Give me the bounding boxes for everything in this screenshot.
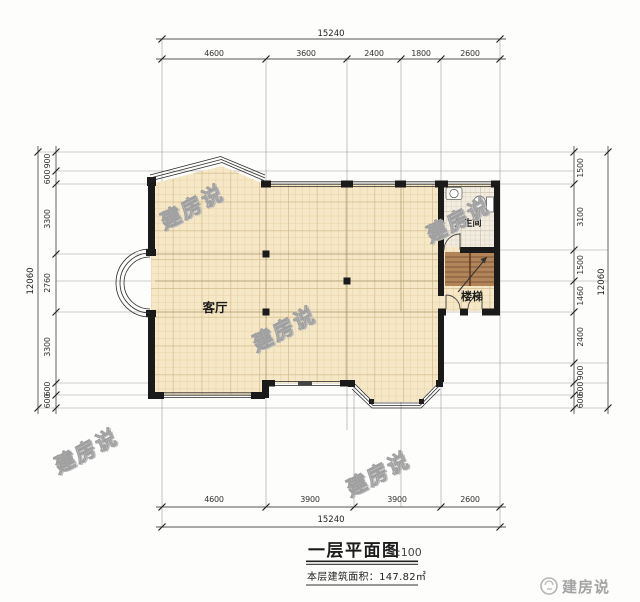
dim-bottom-segment: 2600: [460, 495, 480, 504]
title-underline: [306, 564, 418, 565]
bay-pier: [348, 380, 355, 387]
curved-bay-window: [116, 249, 150, 317]
wall-right: [494, 181, 500, 314]
wall-pier: [251, 392, 265, 399]
brand-logo: 建房说: [541, 578, 610, 596]
dim-bottom-total: 15240: [317, 515, 344, 525]
wall-left-lower: [148, 312, 155, 399]
dim-right-total: 12060: [597, 268, 607, 295]
dim-left-segment: 600: [43, 170, 52, 185]
dim-left-segment: 600: [43, 394, 52, 409]
sink-basin-icon: [450, 189, 458, 197]
dim-bottom-segment: 3900: [300, 495, 320, 504]
wall-pier: [438, 247, 444, 253]
watermark: 建房说 建房说: [51, 422, 122, 480]
column: [344, 278, 351, 285]
dim-right-segment: 2400: [576, 327, 585, 347]
dim-bottom-segment: 4600: [204, 495, 224, 504]
wall-pier: [341, 181, 353, 188]
title-underline: [306, 561, 418, 563]
wall-bathroom-divider: [460, 247, 494, 253]
dim-left-segment: 3300: [43, 209, 52, 229]
dim-top-segment: 2600: [460, 49, 480, 58]
sliding-door-leaf: [298, 381, 312, 386]
column: [263, 309, 270, 316]
dim-right-segment: 1460: [576, 286, 585, 306]
title-block: 一层平面图 1:100 本层建筑面积：147.82㎡: [306, 541, 426, 586]
dimension-text-right: 12060 1500 3100 1500 1460 2400 900 600 6…: [576, 158, 607, 408]
brand-name: 建房说: [562, 578, 610, 596]
dimension-text-top: 15240 4600 3600 2400 1800 2600: [204, 29, 480, 58]
watermark-text: 建房说: [51, 423, 120, 479]
dim-right-segment: 600: [576, 394, 585, 409]
wall-pier: [395, 181, 406, 188]
dim-right-segment: 1500: [576, 158, 585, 178]
dim-left-segment: 3300: [43, 337, 52, 357]
dim-right-segment: 1500: [576, 255, 585, 275]
bay-pier: [419, 399, 424, 404]
bay-pier: [369, 399, 374, 404]
wall-pier: [435, 181, 448, 188]
staircase: [445, 252, 494, 292]
bay-pier: [436, 380, 443, 387]
dim-right-segment: 900: [576, 366, 585, 381]
dim-left-total: 12060: [26, 267, 36, 294]
area-underline: [306, 585, 418, 586]
wall-east-lower: [438, 314, 444, 382]
room-label-stairs: 楼梯: [461, 289, 483, 303]
floor-plan-drawing: 15240 4600 3600 2400 1800 2600 4600 3900…: [0, 0, 640, 602]
dim-top-segment: 1800: [411, 49, 431, 58]
brand-logo-icon: [545, 581, 553, 589]
dim-bottom-segment: 3900: [387, 495, 407, 504]
dim-top-segment: 4600: [204, 49, 224, 58]
drawing-scale: 1:100: [390, 546, 422, 559]
wall-pier: [148, 392, 164, 399]
wall-pier: [146, 249, 156, 256]
wall-left-upper: [148, 184, 155, 254]
dim-top-total: 15240: [317, 29, 344, 39]
dimension-text-left: 12060 900 600 3300 2760 3300 600 600: [26, 154, 52, 409]
dim-right-segment: 3100: [576, 207, 585, 227]
wall-stair-south: [460, 309, 468, 316]
dim-top-segment: 2400: [364, 49, 384, 58]
wall-stair-south: [482, 309, 500, 316]
wall-pier: [261, 181, 271, 188]
watermark-text: 建房说: [343, 446, 412, 502]
dim-left-segment: 2760: [43, 273, 52, 293]
dim-left-segment: 900: [43, 154, 52, 169]
dim-top-segment: 3600: [296, 49, 316, 58]
room-label-living: 客厅: [201, 300, 228, 315]
floor-plan-page: 15240 4600 3600 2400 1800 2600 4600 3900…: [0, 0, 640, 602]
column: [263, 251, 270, 258]
area-note: 本层建筑面积：147.82㎡: [307, 570, 426, 583]
drawing-title: 一层平面图: [308, 541, 401, 561]
